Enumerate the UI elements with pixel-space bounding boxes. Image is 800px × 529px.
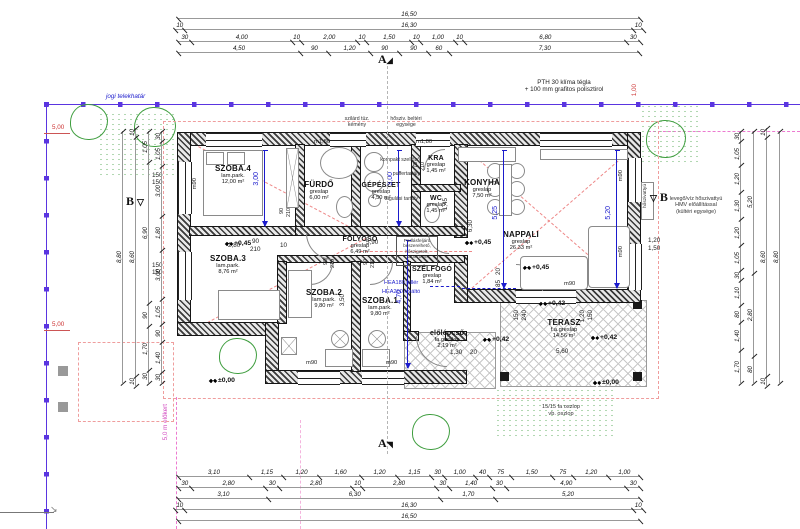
level-marker: ±0,00	[594, 379, 619, 386]
expansion-tank-note: tágulási tartály	[378, 196, 418, 202]
window	[540, 133, 612, 147]
dim-label: 3,50	[340, 294, 347, 306]
dim-chain-left-2: 108,6010	[127, 128, 136, 386]
dim-chain-left-3: 1,056,90901,7030	[140, 131, 149, 383]
dim-chain-bottom-4: 1016,3010	[175, 501, 643, 510]
plot-boundary-label: jogi telekhatár	[106, 94, 145, 101]
survey-point-icon	[465, 238, 473, 246]
room-szoba3: SZOBA.3 lam.park. 8,76 m²	[196, 254, 260, 276]
room-area: 14,56 m²	[532, 333, 596, 339]
sofa	[520, 256, 588, 290]
room-furdo: FÜRDŐ greslap 6,00 m²	[296, 180, 342, 202]
level-marker: ±0,00	[210, 377, 235, 384]
dim-label: 210	[331, 259, 337, 268]
dim-label: 210	[371, 259, 377, 268]
dim-label: 210	[421, 162, 427, 171]
dim-label: 150	[514, 310, 521, 321]
gate-post	[58, 402, 68, 412]
parapet-label: m90	[192, 178, 198, 189]
room-name: SZOBA.3	[196, 254, 260, 263]
gate-post	[58, 366, 68, 376]
blue-dim-line	[264, 150, 265, 226]
level-marker: +0,45	[466, 239, 491, 246]
room-nappali: NAPPALI greslap 26,33 m²	[486, 230, 556, 252]
parapet-label: m90	[564, 281, 575, 287]
blue-dim: 3,00	[253, 172, 260, 186]
blue-dim: 5,25	[492, 206, 499, 220]
dim-chain-right-4: 8,80	[771, 131, 780, 383]
chimney-note: szilárd tüz. kémény	[336, 116, 378, 128]
section-triangle-icon: ▽	[650, 193, 657, 203]
survey-point-icon	[591, 333, 599, 341]
parapet-label: m90	[618, 170, 624, 181]
dim-label: 210	[287, 208, 293, 217]
room-name: SZÉLFOGÓ	[402, 266, 462, 273]
plot-boundary-line-left	[44, 102, 49, 529]
dim-label: 85	[496, 280, 503, 287]
room-elolepcso: előlépcső fa.greslap 2,19 m²	[418, 330, 476, 350]
dim-label: 2,80	[228, 243, 240, 250]
survey-point-icon	[523, 263, 531, 271]
tree-icon	[70, 104, 108, 140]
dim-chain-bottom-3: 3,106,301,705,20	[178, 490, 640, 499]
dim-label: 210	[250, 247, 261, 254]
dim-label: 150	[588, 310, 595, 321]
desk-chair	[368, 330, 386, 348]
dim-chain-bottom-2: 302,80302,80102,80301,40304,9030	[178, 479, 640, 488]
bed	[218, 290, 280, 320]
hea-pillar-note: HEA180 pillér	[384, 281, 418, 287]
hea-lintel-line	[462, 288, 516, 289]
tree-icon	[412, 414, 450, 450]
dim-label: 6,30	[468, 220, 475, 232]
dim-label: 1,30	[450, 350, 462, 357]
leader-line	[0, 512, 54, 513]
parapet-label: m90	[618, 246, 624, 257]
section-marker-a-bottom: A◥	[378, 436, 393, 451]
attic-hatch-note: Padlásfeljáró beszerelhető, hőszigetelt,…	[396, 236, 438, 266]
window	[298, 371, 340, 385]
dim-label: 90	[324, 259, 330, 265]
room-area: 6,49 m²	[334, 249, 386, 255]
dim-chain-bottom-1: 3,101,151,201,601,201,15301,0040751,5075…	[178, 468, 640, 477]
desk	[325, 349, 353, 367]
wall-southwest	[178, 323, 278, 335]
room-name: FÜRDŐ	[296, 180, 342, 189]
survey-point-icon	[483, 335, 491, 343]
terrace-post	[633, 372, 642, 381]
level-marker: +0,45	[524, 264, 549, 271]
dim-label: 1,20	[580, 310, 587, 322]
dim-label: 20	[496, 268, 503, 275]
dim-label: 90	[364, 259, 370, 265]
red-dim: 5,00	[52, 322, 64, 329]
survey-point-icon	[593, 378, 601, 386]
red-tick	[44, 330, 70, 331]
dim-chain-right-2: 5,202,8080	[745, 131, 754, 383]
dim-chain-top-4: 4,50901,209090607,30	[178, 44, 640, 53]
window	[628, 244, 642, 290]
wall-construction-note: PTH 30 klíma tégla + 100 mm grafitos pol…	[508, 80, 620, 93]
room-area: 6,00 m²	[296, 195, 342, 201]
dim-label: 20	[470, 350, 477, 357]
section-flag-icon: ◥	[387, 440, 393, 449]
room-name: GÉPÉSZET	[352, 182, 410, 189]
hea-leader-line	[430, 286, 460, 287]
cabinet	[281, 337, 297, 355]
dim-chain-bottom-5: 16,50	[178, 512, 640, 521]
parapet-label: m1,80	[314, 139, 330, 145]
heat-pump-note: levegő/víz hőszivattyú HMV előállítással…	[658, 196, 734, 215]
dim-chain-right-1: 301,051,201,301,201,05301,10801,401,70	[732, 131, 741, 383]
room-area: 8,76 m²	[196, 269, 260, 275]
dim-chain-right-3: 108,6010	[758, 128, 767, 386]
heat-pump-label: hőszivattyú	[643, 184, 648, 208]
indoor-unit-note: hősziv. beltéri egysége	[384, 116, 428, 128]
dim-label: 75	[414, 162, 420, 168]
dim-label: 5,60	[556, 349, 568, 356]
window	[206, 133, 262, 147]
red-dim: 1,00	[632, 84, 639, 96]
arrow-icon: ↘	[50, 505, 58, 514]
kitchen-counter	[458, 147, 516, 162]
dim-label: 5,90	[366, 240, 378, 247]
desk-chair	[331, 330, 349, 348]
dim-chain-top-2: 1016,3010	[175, 21, 643, 30]
room-name: NAPPALI	[486, 230, 556, 239]
dim-chain-top-1: 16,50	[178, 10, 640, 19]
dim-label: 10	[280, 243, 287, 250]
room-area: 2,19 m²	[418, 343, 476, 349]
section-marker-a-top: A◢	[378, 52, 393, 67]
window	[362, 371, 404, 385]
dim-label: 1,20	[648, 238, 660, 245]
dim-chain-top-3: 304,00102,00101,50101,00106,8030	[178, 33, 640, 42]
room-area: 9,80 m²	[354, 311, 406, 317]
blue-dim: 5,20	[605, 206, 612, 220]
survey-point-icon	[209, 376, 217, 384]
bathtub	[320, 147, 358, 179]
window	[178, 252, 192, 300]
room-name: előlépcső	[418, 330, 476, 337]
terrace-post	[500, 372, 509, 381]
window	[178, 162, 192, 214]
blue-dim-line	[616, 150, 617, 288]
red-dim: 5,00	[52, 125, 64, 132]
blue-dim-line	[503, 150, 504, 288]
parapet-label: m1,80	[416, 139, 432, 145]
window	[330, 133, 366, 147]
dim-label: 90	[280, 208, 286, 214]
dim-label: 90	[252, 239, 259, 246]
level-marker: +0,42	[484, 336, 509, 343]
dim-label: 1,45	[443, 198, 450, 210]
section-a-line	[387, 66, 388, 454]
dim-label: 240	[522, 310, 529, 321]
parapet-label: m90	[386, 360, 397, 366]
wall-int	[190, 227, 296, 235]
level-marker: +0,42	[592, 334, 617, 341]
room-name: KRA	[418, 155, 454, 162]
section-flag-icon: ◢	[387, 56, 393, 65]
survey-point-icon	[539, 299, 547, 307]
floor-plan-canvas: jogi telekhatár 5,0 m előkert	[0, 0, 800, 529]
room-area: 26,33 m²	[486, 245, 556, 251]
dim-chain-left-1: 8,80	[114, 131, 123, 383]
dim-label: 1,50	[648, 246, 660, 253]
section-marker-b-right: ▽ B	[650, 190, 668, 205]
parapet-label: m90	[306, 360, 317, 366]
level-marker: +0,42	[540, 300, 565, 307]
window	[628, 158, 642, 202]
red-tick	[44, 133, 70, 134]
dim-chain-left-4: 301,053,001,803,001,05901,4030	[153, 131, 162, 383]
post-note: 15/15 fa oszlop vb. oszlop	[528, 404, 594, 417]
